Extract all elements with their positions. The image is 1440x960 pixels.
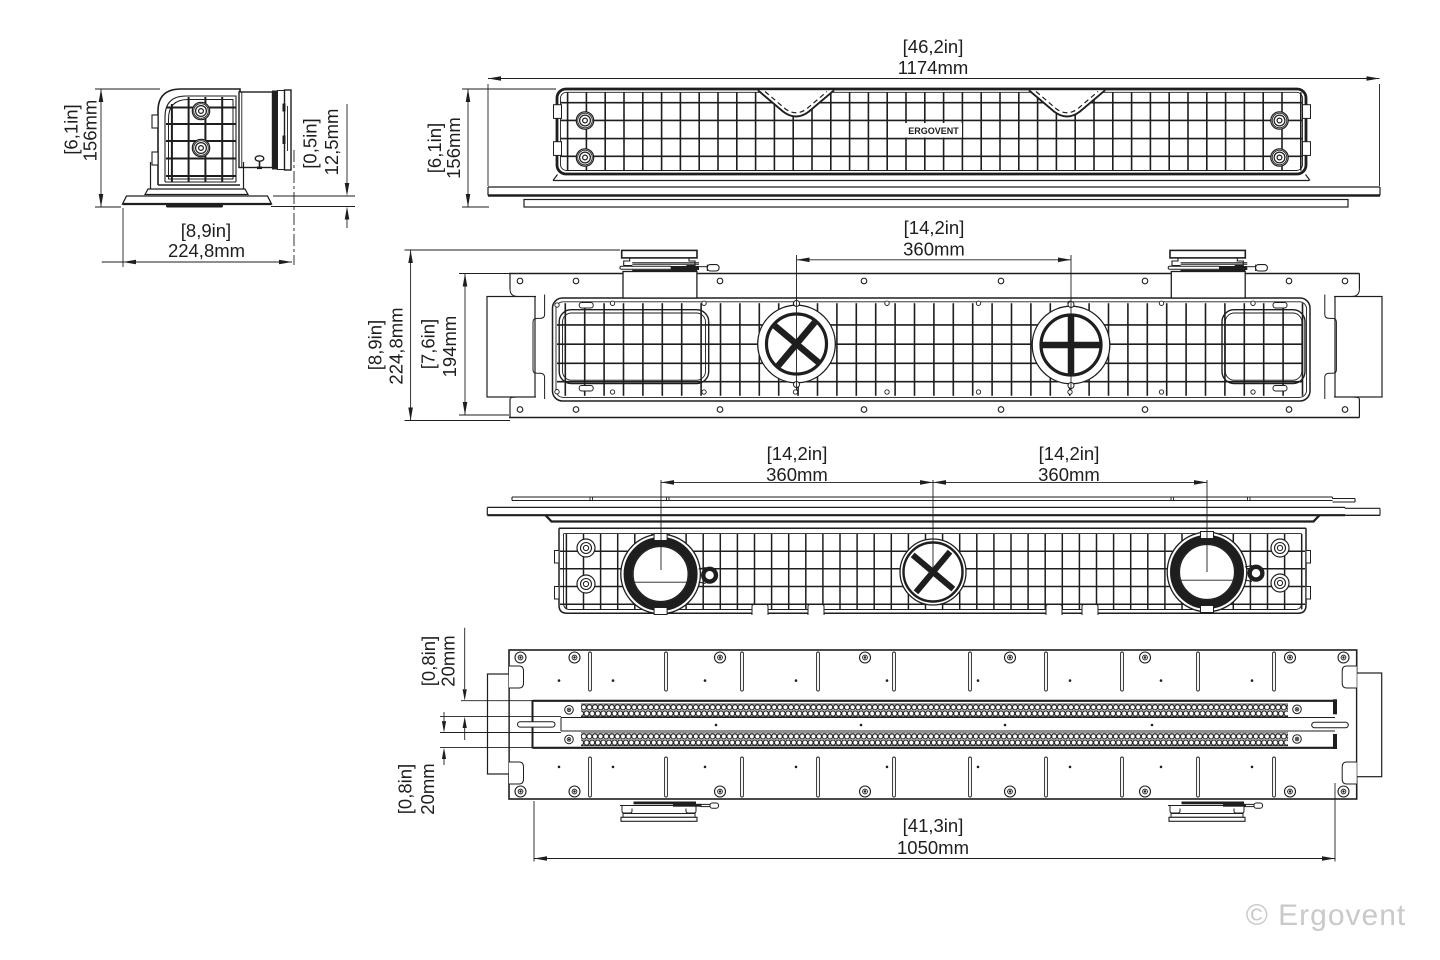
- svg-text:[0,5in]: [0,5in]: [300, 118, 321, 168]
- svg-text:224,8mm: 224,8mm: [168, 240, 245, 261]
- svg-text:[8,9in]: [8,9in]: [181, 220, 231, 241]
- svg-text:156mm: 156mm: [80, 100, 101, 162]
- svg-text:[14,2in]: [14,2in]: [1039, 443, 1100, 464]
- svg-text:[8,9in]: [8,9in]: [365, 320, 386, 370]
- svg-text:[46,2in]: [46,2in]: [903, 36, 964, 57]
- svg-text:[6,1in]: [6,1in]: [61, 104, 82, 154]
- svg-text:[41,3in]: [41,3in]: [903, 815, 964, 836]
- svg-text:360mm: 360mm: [1038, 464, 1100, 485]
- svg-text:[14,2in]: [14,2in]: [904, 217, 965, 238]
- svg-text:ERGOVENT: ERGOVENT: [908, 126, 959, 136]
- svg-text:224,8mm: 224,8mm: [386, 307, 407, 384]
- svg-text:[6,1in]: [6,1in]: [424, 123, 445, 173]
- svg-text:156mm: 156mm: [443, 117, 464, 179]
- svg-text:[0,8in]: [0,8in]: [395, 764, 416, 814]
- svg-text:360mm: 360mm: [903, 239, 965, 260]
- svg-text:20mm: 20mm: [438, 635, 459, 686]
- svg-text:1174mm: 1174mm: [898, 57, 969, 78]
- svg-text:[0,8in]: [0,8in]: [418, 636, 439, 686]
- svg-text:12,5mm: 12,5mm: [321, 109, 342, 176]
- svg-text:1050mm: 1050mm: [897, 837, 969, 858]
- svg-text:[7,6in]: [7,6in]: [418, 319, 439, 369]
- svg-text:© Ergovent: © Ergovent: [1246, 899, 1407, 932]
- svg-text:[14,2in]: [14,2in]: [767, 443, 828, 464]
- svg-text:360mm: 360mm: [766, 464, 828, 485]
- svg-text:194mm: 194mm: [439, 316, 460, 378]
- svg-text:20mm: 20mm: [417, 763, 438, 814]
